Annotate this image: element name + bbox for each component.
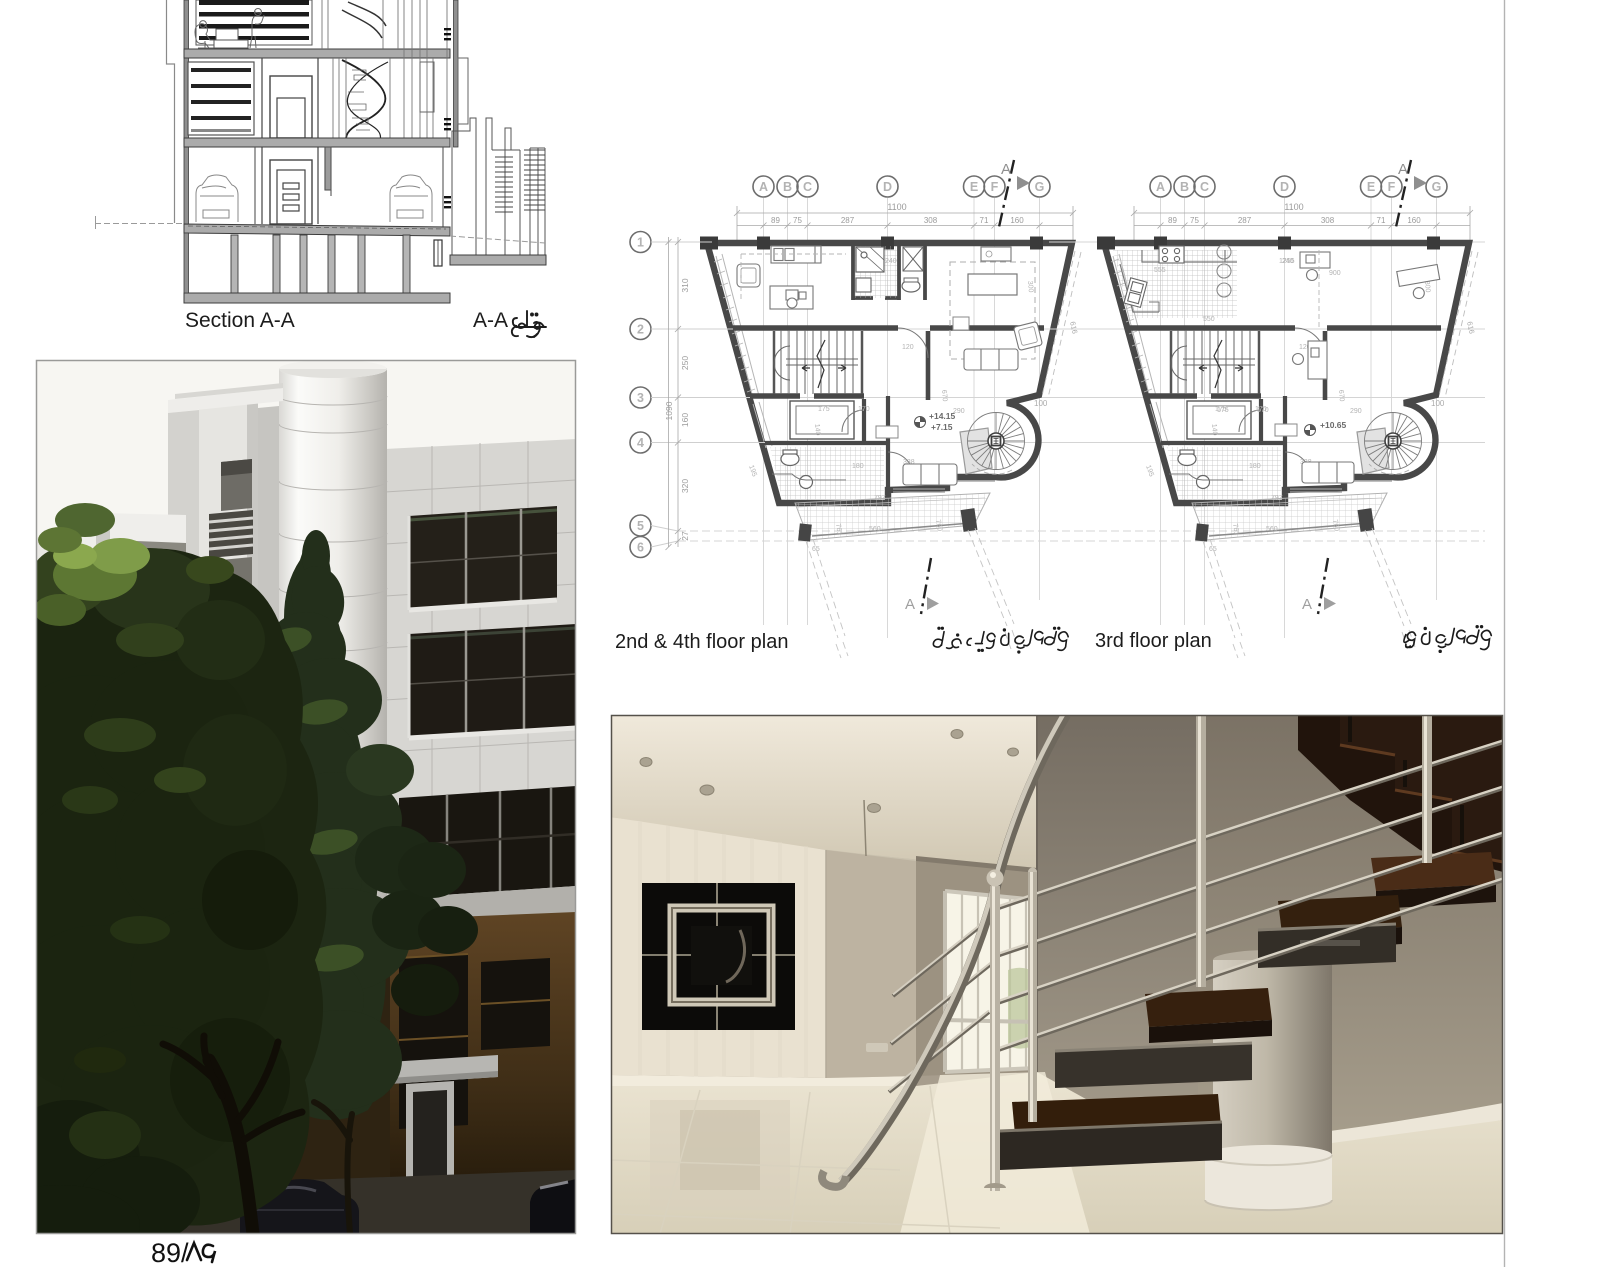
svg-text:3: 3: [637, 391, 644, 405]
svg-text:1: 1: [637, 236, 644, 250]
svg-text:310: 310: [680, 278, 690, 292]
svg-text:+14.15: +14.15: [929, 411, 956, 421]
svg-text:+10.65: +10.65: [1320, 420, 1347, 430]
svg-text:2: 2: [637, 323, 644, 337]
svg-text:+7.15: +7.15: [931, 422, 953, 432]
svg-text:1255: 1255: [1279, 258, 1295, 265]
svg-text:5: 5: [637, 519, 644, 533]
svg-text:900: 900: [1329, 270, 1341, 277]
svg-text:2nd & 4th floor plan: 2nd & 4th floor plan: [615, 631, 788, 653]
svg-text:250: 250: [680, 356, 690, 370]
svg-text:550: 550: [1203, 316, 1215, 323]
svg-text:175: 175: [1217, 407, 1229, 414]
svg-text:4: 4: [637, 436, 644, 450]
svg-text:320: 320: [680, 479, 690, 493]
svg-text:555: 555: [1154, 267, 1166, 274]
svg-text:6: 6: [637, 541, 644, 555]
svg-text:Section A-A: Section A-A: [185, 309, 295, 332]
svg-text:89/: 89/: [151, 1238, 189, 1267]
svg-text:1090: 1090: [664, 401, 674, 420]
svg-text:A-A: A-A: [473, 309, 508, 332]
svg-text:27: 27: [680, 531, 690, 541]
svg-text:3rd floor plan: 3rd floor plan: [1095, 630, 1212, 652]
svg-text:160: 160: [680, 413, 690, 427]
svg-text:170: 170: [1257, 407, 1269, 414]
